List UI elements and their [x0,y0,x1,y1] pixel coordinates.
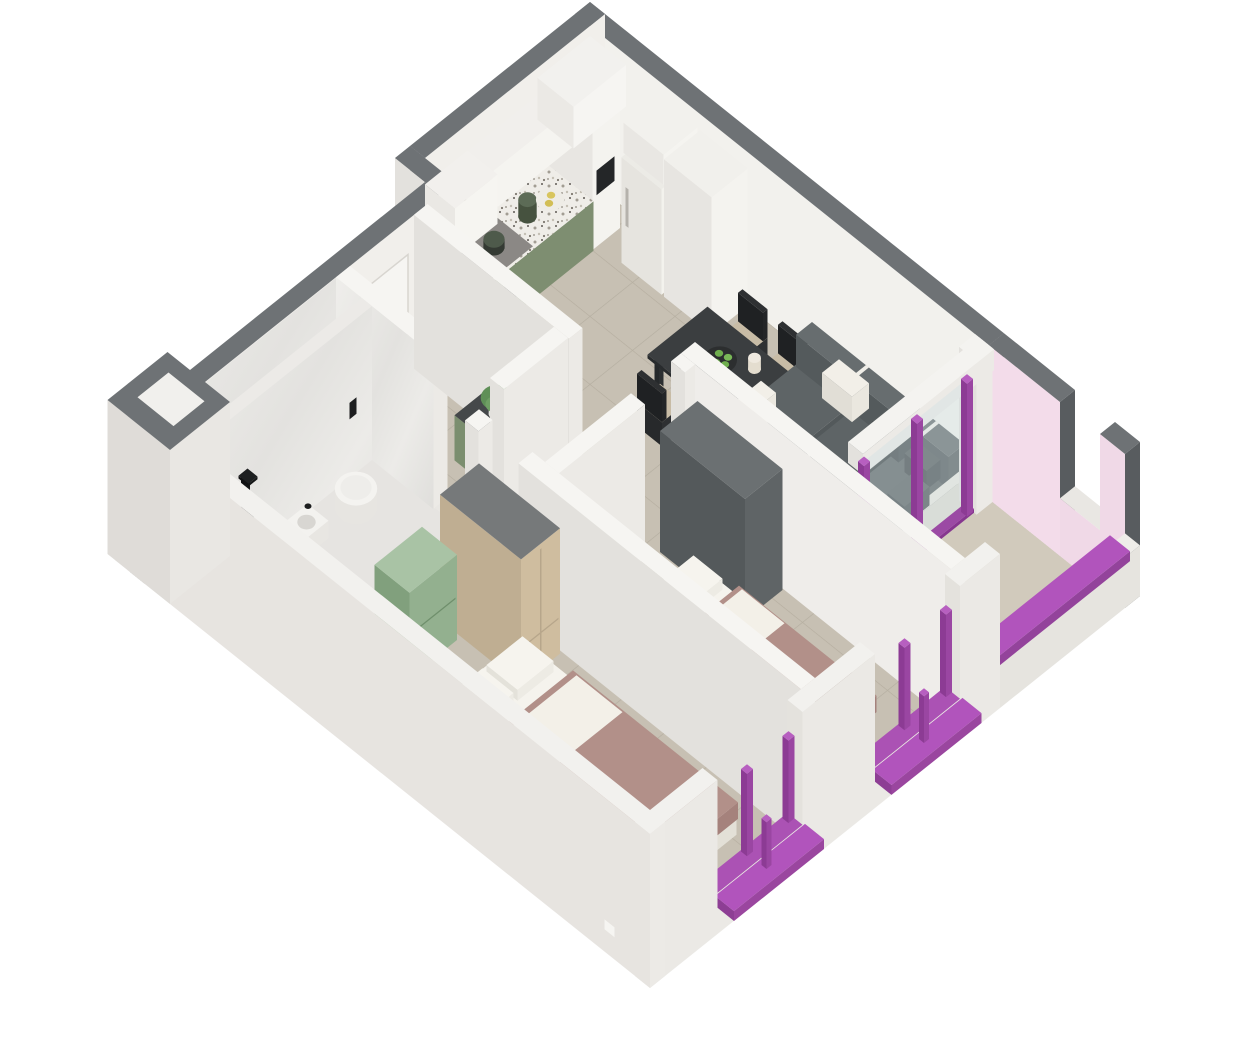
bedroom1-ledge-post [762,814,772,869]
bedroom2-window-post [899,638,911,730]
apple [715,350,723,357]
bedroom2-ledge-post [919,688,929,743]
floorplan-stage [0,0,1242,1060]
bidet-basin [297,515,315,530]
candle-jar [748,353,761,374]
fridge-handle [626,187,629,228]
toilet-lid [340,475,371,500]
kitchen-jar [518,192,536,223]
bedroom1-window-post [783,731,795,823]
render-root [108,2,1141,988]
kitchen-lemon-plate [536,189,564,212]
apple [724,354,732,361]
kitchen-lemon [545,200,553,207]
kitchen-lemon [547,192,555,199]
wardrobe-door-seam [540,548,542,656]
kitchen-tall-cabinet [664,131,748,335]
floorplan-render [0,0,1242,1060]
bedroom1-window-post [741,764,753,856]
bedroom2-window-post [940,605,952,697]
bidet-tap [305,503,312,509]
glass-door-frame-post [961,374,973,517]
